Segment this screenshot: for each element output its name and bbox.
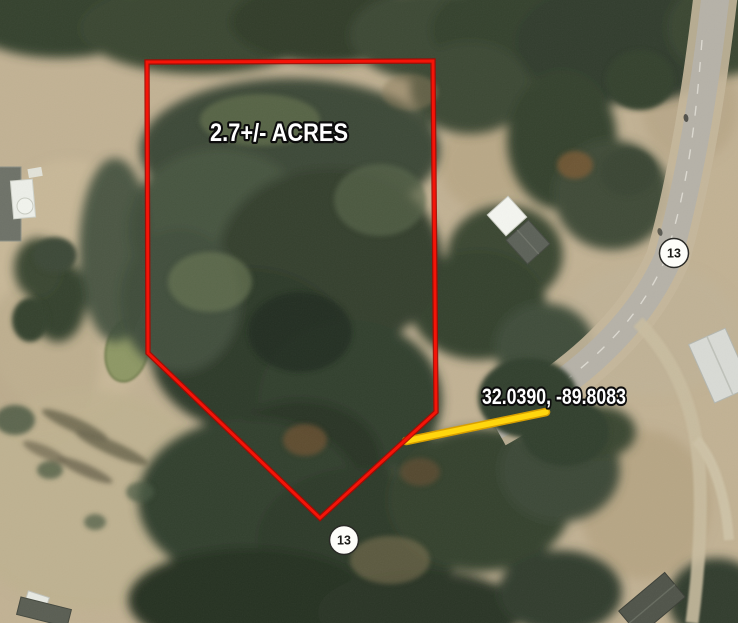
highway-shield-number: 13 [337,534,351,548]
acreage-label: 2.7+/- ACRES [210,119,348,147]
highway-shield-number: 13 [667,247,681,261]
aerial-map: 2.7+/- ACRES 32.0390, -89.8083 13 13 [0,0,738,623]
aerial-imagery [0,0,738,623]
highway-shield: 13 [660,239,689,268]
highway-shield: 13 [330,526,359,555]
noise-overlay [0,0,738,623]
coordinates-label: 32.0390, -89.8083 [482,384,626,409]
